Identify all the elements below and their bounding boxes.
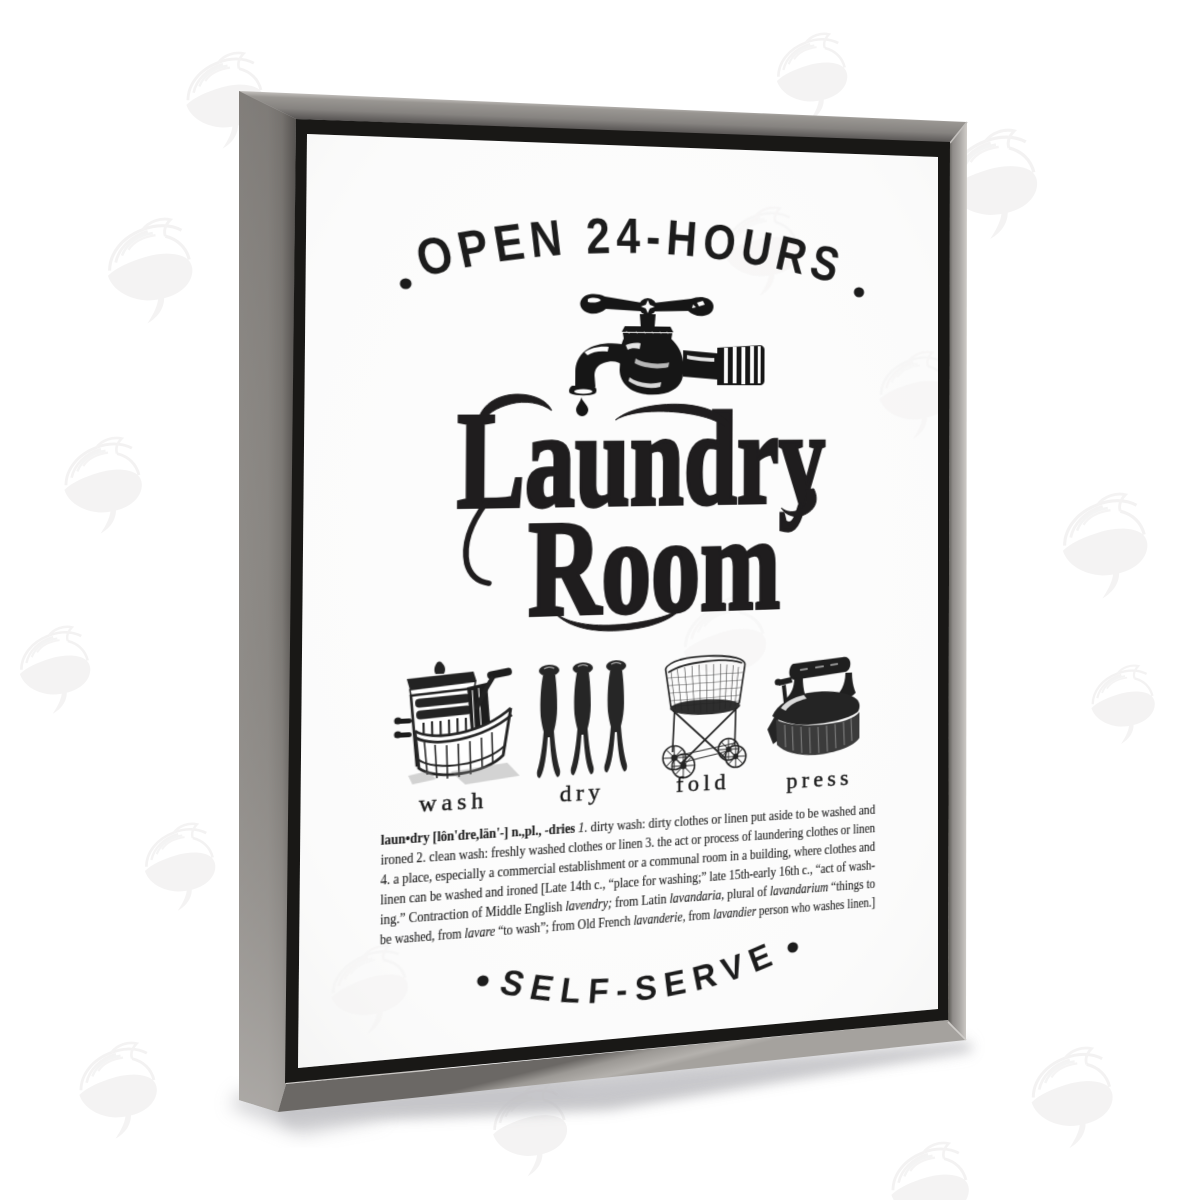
- svg-text:fold: fold: [676, 770, 730, 797]
- svg-text:wash: wash: [419, 788, 488, 817]
- svg-text:dry: dry: [560, 780, 605, 807]
- svg-text:press: press: [787, 766, 853, 793]
- svg-text:SELF-SERVE: SELF-SERVE: [495, 932, 784, 1021]
